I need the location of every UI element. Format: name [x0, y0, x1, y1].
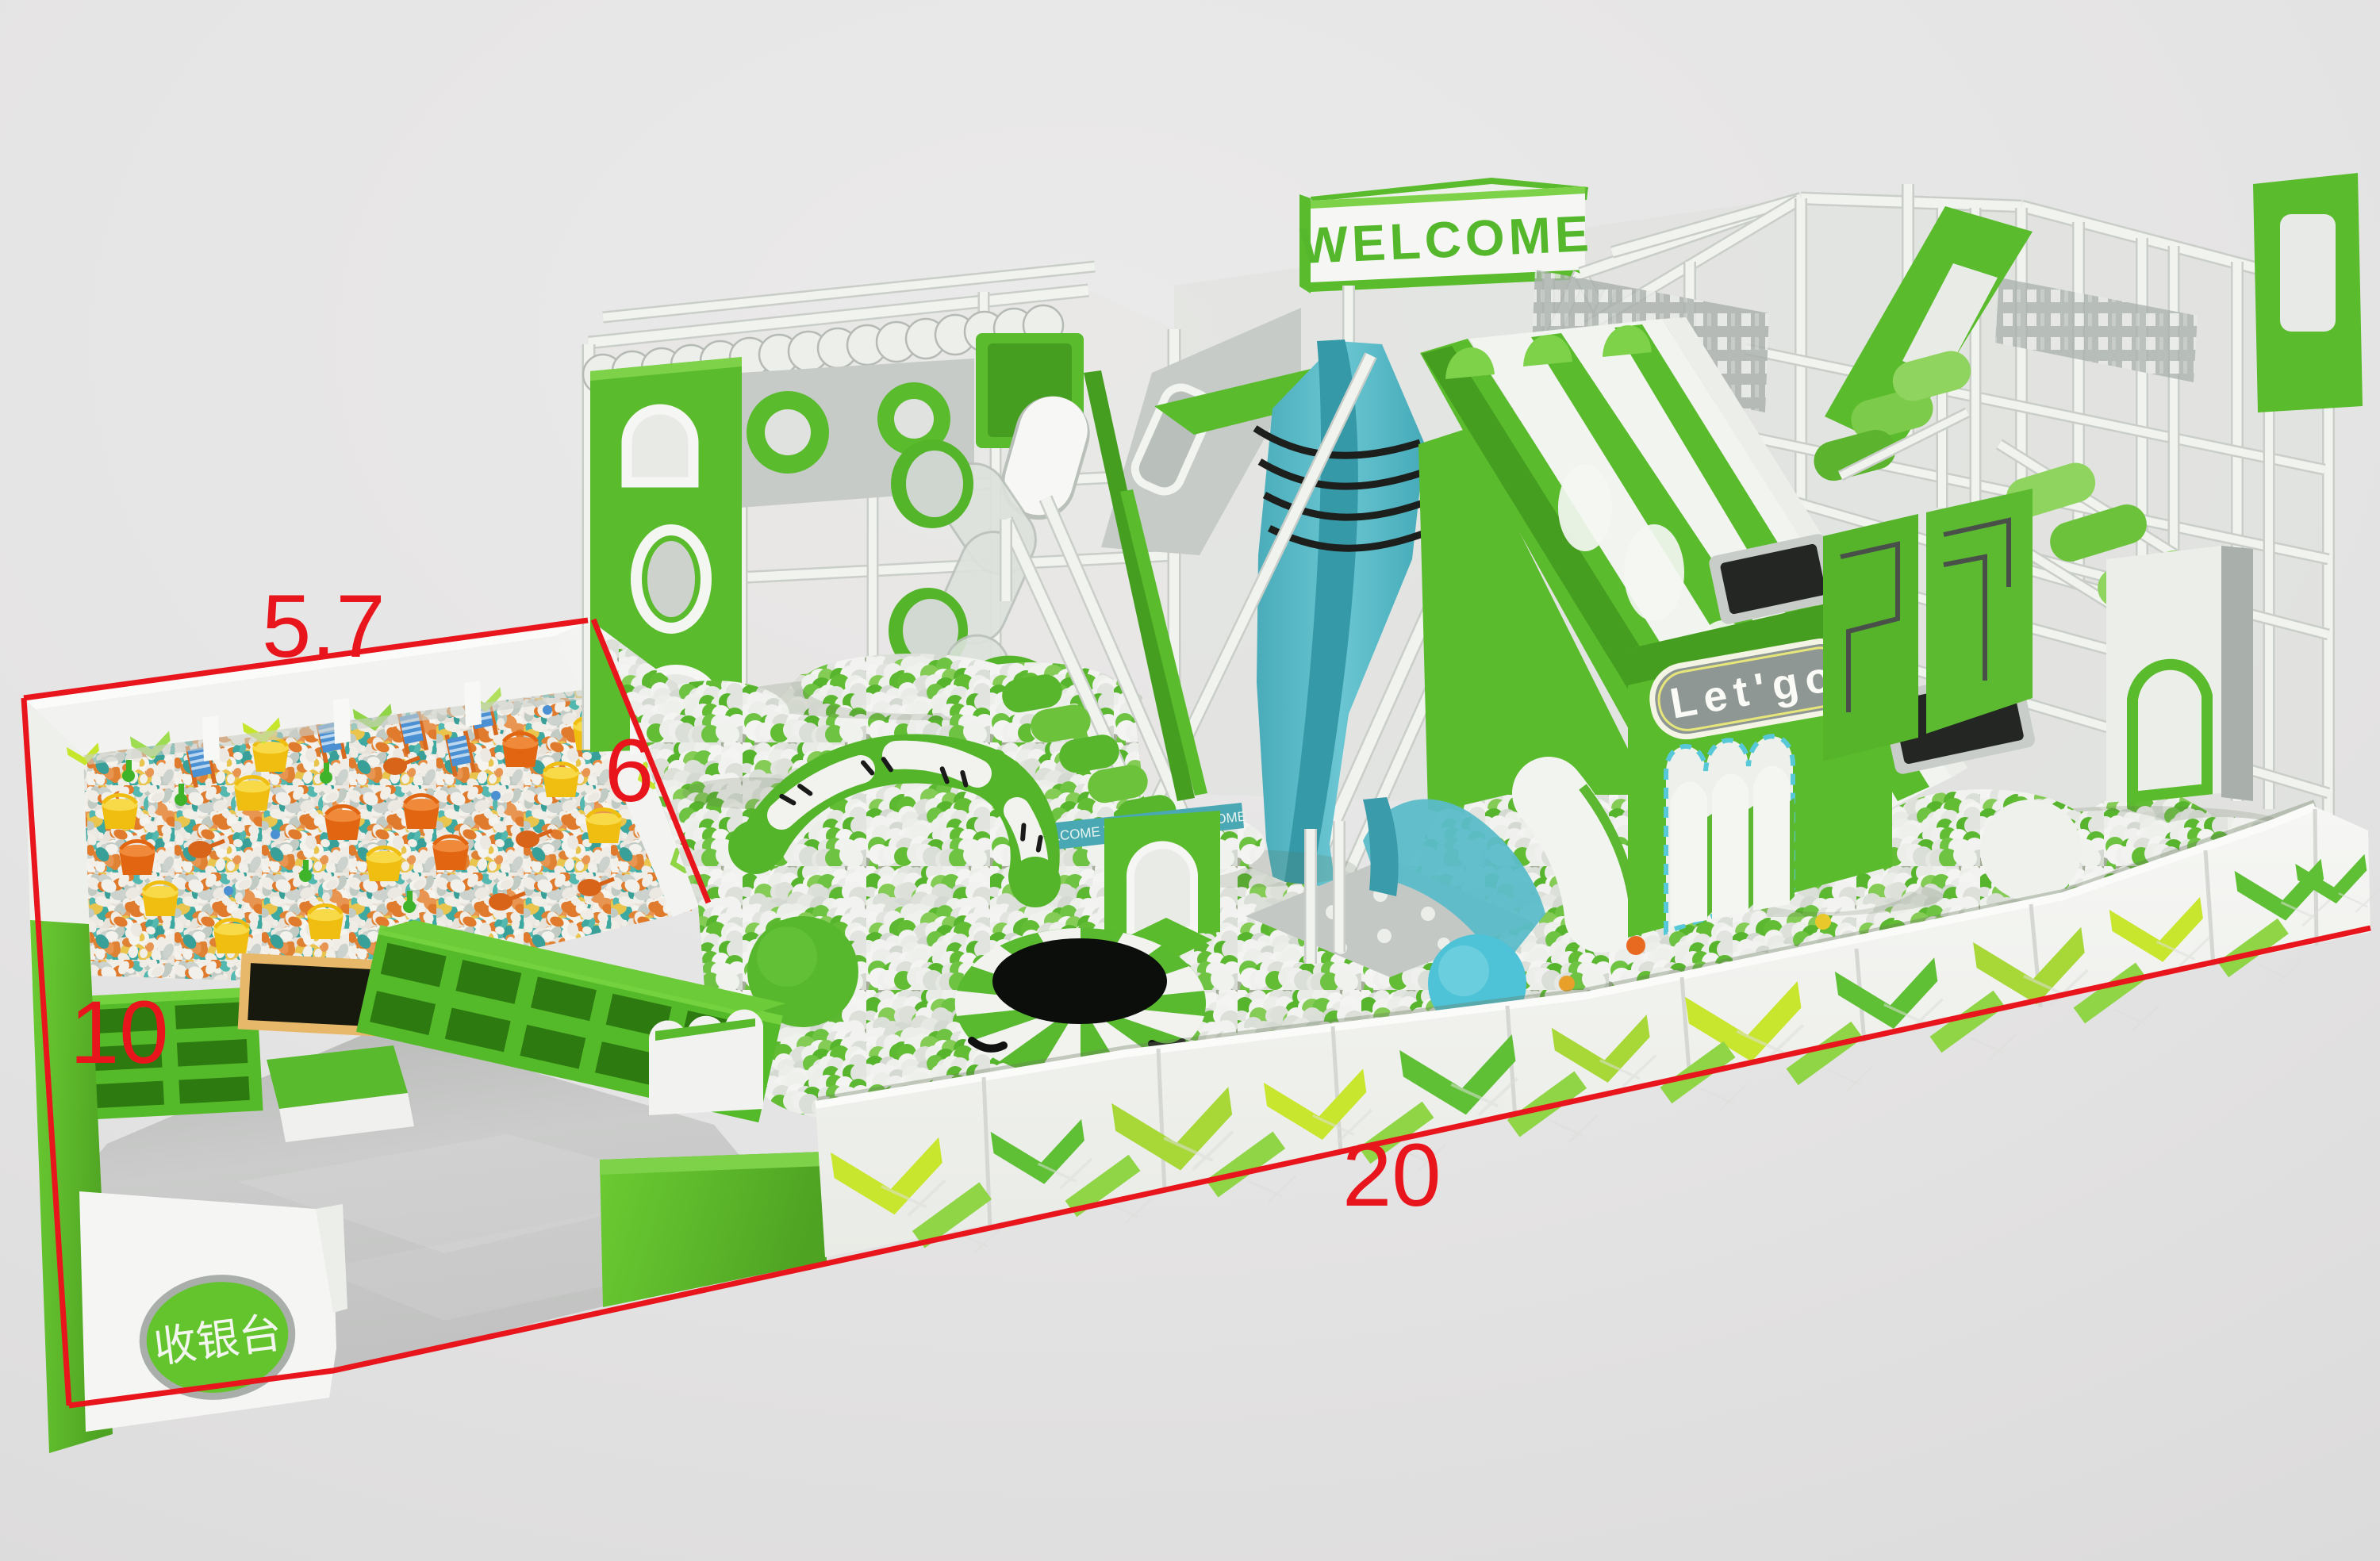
svg-text:5.7: 5.7 — [262, 577, 386, 676]
svg-text:20: 20 — [1342, 1126, 1441, 1225]
svg-text:10: 10 — [70, 983, 169, 1082]
svg-text:6: 6 — [605, 721, 654, 820]
